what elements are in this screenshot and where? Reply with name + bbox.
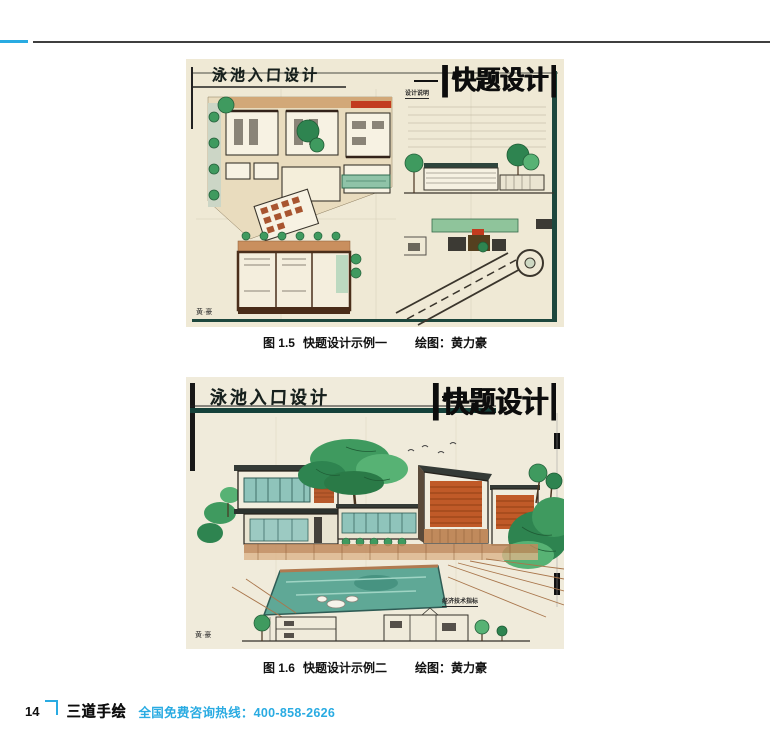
book-page: { "page": { "number": "14", "brand": "三道…: [0, 0, 770, 750]
figure-1-caption-label: 图 1.5: [263, 336, 295, 350]
figure-1-drawing-title: 泳池入口设计: [211, 63, 320, 85]
figure-2-caption-title: 快题设计示例二: [303, 661, 387, 675]
figure-2-corner-logo: 快题设计: [433, 383, 556, 421]
figure-2-scan: 泳池入口设计 快题设计 经济技术指标 黄·豪: [186, 377, 564, 649]
figure-1-credit: 绘图：黄力豪: [415, 336, 487, 350]
header-rule: [33, 41, 770, 43]
figure-2-drawing-title: 泳池入口设计: [209, 382, 330, 408]
header-accent-rule: [0, 40, 28, 43]
figure-2-caption-label: 图 1.6: [263, 661, 295, 675]
figure-2-credit: 绘图：黄力豪: [415, 661, 487, 675]
swimming-pool: [264, 566, 446, 615]
footer-bracket-rule: [45, 700, 58, 715]
figure-1-scan: 泳池入口设计 快题设计 设计说明 黄·豪: [186, 59, 564, 327]
figure-1-signature: 黄·豪: [196, 307, 212, 317]
brand-logo: 三道手绘: [66, 700, 126, 722]
figure-1-caption-title: 快题设计示例一: [303, 336, 387, 350]
right-building-a: [418, 465, 492, 543]
figure-1-notes-label: 设计说明: [405, 90, 429, 99]
figure-1-drawing: [186, 59, 564, 327]
figure-2-signature: 黄·豪: [195, 630, 211, 640]
terrace: [244, 544, 538, 560]
hotline-text: 全国免费咨询热线：400-858-2626: [138, 702, 335, 721]
figure-1-caption: 图 1.5快题设计示例一绘图：黄力豪: [186, 334, 564, 351]
second-floor-plan: [238, 232, 361, 314]
figure-1-corner-logo: 快题设计: [442, 65, 556, 98]
page-footer: 14 三道手绘 全国免费咨询热线：400-858-2626: [25, 700, 335, 722]
page-number: 14: [25, 704, 39, 719]
figure-2-notes-label: 经济技术指标: [442, 598, 478, 607]
figure-2-caption: 图 1.6快题设计示例二绘图：黄力豪: [186, 659, 564, 676]
